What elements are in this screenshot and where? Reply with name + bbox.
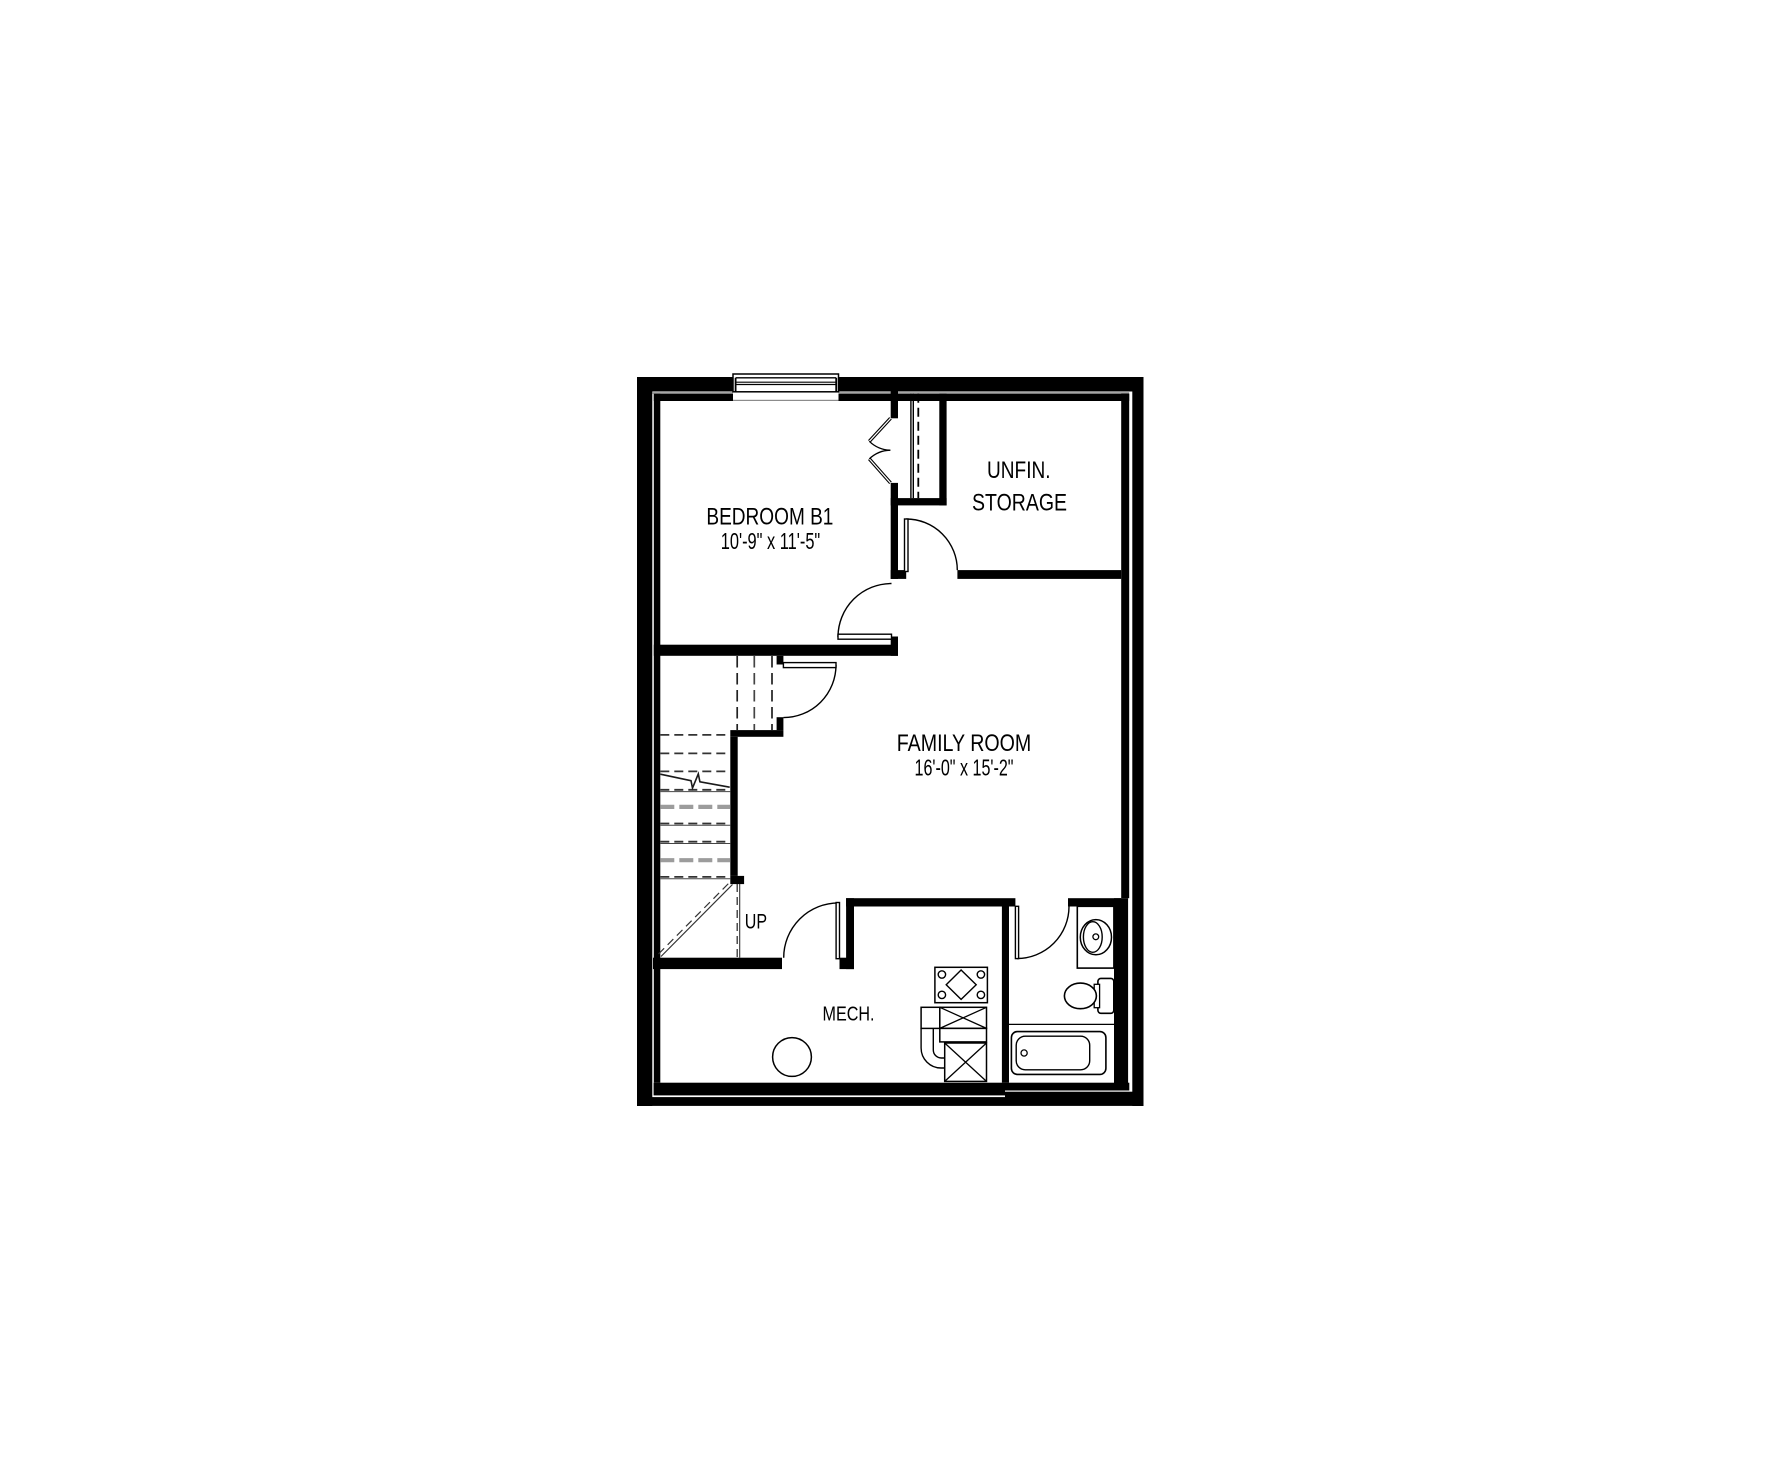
svg-text:16'-0" x 15'-2": 16'-0" x 15'-2" — [915, 755, 1014, 781]
svg-text:STORAGE: STORAGE — [972, 489, 1067, 516]
svg-text:10'-9" x 11'-5": 10'-9" x 11'-5" — [721, 528, 821, 554]
svg-text:UP: UP — [745, 910, 767, 934]
svg-text:MECH.: MECH. — [823, 1003, 875, 1025]
svg-text:FAMILY ROOM: FAMILY ROOM — [897, 730, 1032, 757]
svg-text:UNFIN.: UNFIN. — [987, 457, 1051, 484]
svg-text:BEDROOM B1: BEDROOM B1 — [706, 503, 833, 530]
